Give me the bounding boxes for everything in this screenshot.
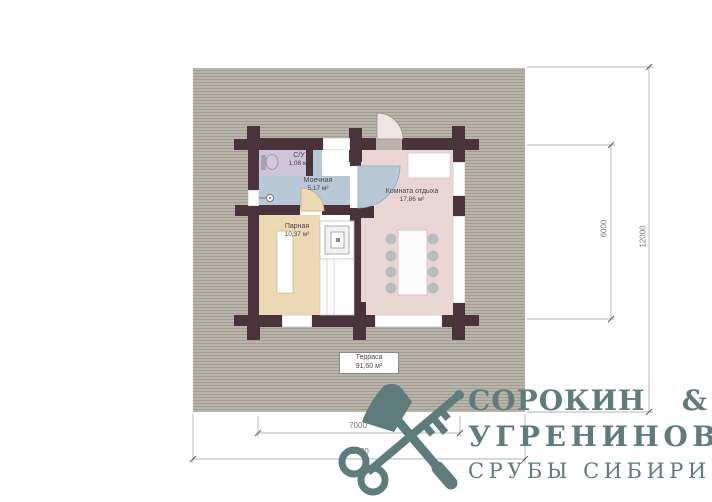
brand-ampersand: & xyxy=(682,384,708,417)
brand-tagline: СРУБЫ СИБИРИ xyxy=(468,459,708,483)
dim-site-depth: 12000 xyxy=(639,222,648,252)
logo-text-block: СОРОКИН & УГРЕНИНОВ СРУБЫ СИБИРИ xyxy=(468,384,708,483)
logo-emblem-axe-key-icon xyxy=(332,380,488,502)
brand-line-1: СОРОКИН & xyxy=(468,384,708,420)
dim-building-depth: 6000 xyxy=(600,217,609,241)
brand-name-1: СОРОКИН xyxy=(468,384,646,417)
brand-line-2: УГРЕНИНОВ xyxy=(468,420,708,457)
floor-plan-sheet: С/У1,08 м² Моечная5,17 м² Парная10,37 м²… xyxy=(0,0,712,502)
